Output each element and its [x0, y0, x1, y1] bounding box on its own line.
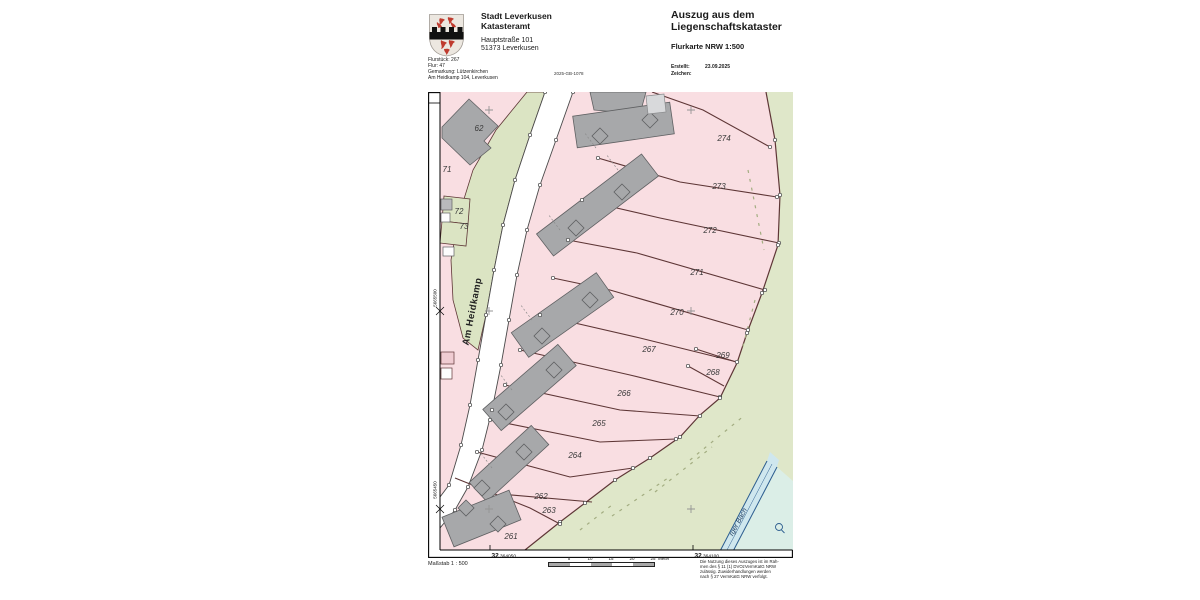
- boundary-point: [518, 348, 521, 351]
- svg-text:32: 32: [492, 553, 500, 559]
- legal-text: Die Nutzung dieses Auszuges ist im Rah- …: [700, 559, 792, 579]
- boundary-point: [480, 448, 483, 451]
- scale-tick-label: 20: [629, 556, 634, 561]
- info-address: Am Heidkamp 104, Leverkusen: [428, 75, 498, 81]
- boundary-point: [453, 508, 456, 511]
- boundary-point: [583, 501, 586, 504]
- small-building: [441, 368, 452, 379]
- boundary-point: [476, 358, 479, 361]
- boundary-point: [551, 276, 554, 279]
- boundary-point: [543, 92, 546, 94]
- scale-tick-label: 25: [650, 556, 655, 561]
- boundary-point: [554, 138, 557, 141]
- scale-unit-label: Meter: [658, 556, 670, 561]
- boundary-point: [776, 243, 779, 246]
- parcel-label-71: 71: [443, 165, 452, 174]
- office-address-line1: Hauptstraße 101: [481, 37, 533, 45]
- parcel-label-73: 73: [460, 222, 469, 231]
- scale-text: Maßstab 1 : 500: [428, 561, 468, 567]
- small-building: [441, 213, 450, 222]
- parcel-label-272: 272: [702, 226, 717, 235]
- map-content: Am Heidkamp rger Bach 627172732742732722…: [440, 92, 793, 550]
- boundary-point: [447, 483, 450, 486]
- boundary-point: [515, 273, 518, 276]
- boundary-point: [718, 396, 721, 399]
- boundary-point: [468, 403, 471, 406]
- boundary-point: [528, 133, 531, 136]
- boundary-point: [773, 138, 776, 141]
- parcel-label-274: 274: [716, 134, 731, 143]
- boundary-point: [492, 268, 495, 271]
- parcel-label-62: 62: [475, 124, 484, 133]
- cadastral-map: Am Heidkamp rger Bach 627172732742732722…: [428, 92, 793, 558]
- boundary-point: [613, 478, 616, 481]
- boundary-point: [768, 145, 771, 148]
- boundary-point: [466, 485, 469, 488]
- boundary-point: [735, 360, 738, 363]
- boundary-point: [488, 418, 491, 421]
- boundary-point: [580, 198, 583, 201]
- boundary-point: [571, 92, 574, 94]
- scale-bar: 5 10 15 20 25 Meter: [548, 556, 678, 568]
- boundary-point: [674, 437, 677, 440]
- boundary-point: [686, 364, 689, 367]
- document-title-line1: Auszug aus dem: [671, 9, 754, 21]
- parcel-label-268: 268: [705, 368, 720, 377]
- boundary-point: [503, 383, 506, 386]
- small-building: [441, 352, 454, 364]
- boundary-point: [490, 408, 493, 411]
- parcel-label-271: 271: [689, 268, 703, 277]
- boundary-point: [499, 363, 502, 366]
- boundary-point: [475, 450, 478, 453]
- leverkusen-coat-of-arms: [428, 13, 465, 57]
- parcel-label-270: 270: [669, 308, 684, 317]
- svg-text:5665450: 5665450: [433, 481, 438, 499]
- boundary-point: [538, 313, 541, 316]
- boundary-point: [513, 178, 516, 181]
- parcel-label-264: 264: [567, 451, 582, 460]
- scale-tick-label: 5: [568, 556, 571, 561]
- scale-bar-graphic: [548, 562, 655, 567]
- boundary-point: [678, 435, 681, 438]
- building-light: [646, 94, 666, 114]
- parcel-label-267: 267: [641, 345, 656, 354]
- created-value: 23.09.2025: [705, 64, 730, 70]
- office-address-line2: 51373 Leverkusen: [481, 45, 539, 53]
- boundary-point: [778, 193, 781, 196]
- small-building: [443, 247, 454, 256]
- boundary-point: [698, 414, 701, 417]
- svg-text:364050: 364050: [500, 554, 516, 559]
- boundary-point: [525, 228, 528, 231]
- parcel-label-262: 262: [533, 492, 548, 501]
- boundary-point: [484, 313, 487, 316]
- boundary-point: [596, 156, 599, 159]
- parcel-label-265: 265: [591, 419, 606, 428]
- small-building: [441, 199, 452, 210]
- document-number: 2025-GB-1078: [554, 71, 584, 76]
- parcel-label-72: 72: [455, 207, 464, 216]
- boundary-point: [566, 238, 569, 241]
- svg-text:364100: 364100: [703, 554, 719, 559]
- document-title-line2: Liegenschaftskataster: [671, 21, 782, 33]
- parcel-label-261: 261: [503, 532, 517, 541]
- cadastral-extract-page: Stadt Leverkusen Katasteramt Hauptstraße…: [0, 0, 1200, 600]
- svg-text:32: 32: [695, 553, 703, 559]
- sign-label: Zeichen:: [671, 71, 692, 77]
- boundary-point: [459, 443, 462, 446]
- boundary-point: [745, 331, 748, 334]
- boundary-point: [538, 183, 541, 186]
- boundary-point: [694, 347, 697, 350]
- boundary-point: [763, 288, 766, 291]
- parcel-label-269: 269: [715, 351, 730, 360]
- boundary-point: [501, 223, 504, 226]
- office-name-line2: Katasteramt: [481, 22, 530, 32]
- document-subtitle: Flurkarte NRW 1:500: [671, 42, 744, 51]
- parcel-label-273: 273: [711, 182, 726, 191]
- boundary-point: [558, 522, 561, 525]
- created-label: Erstellt:: [671, 64, 690, 70]
- parcel-label-263: 263: [541, 506, 556, 515]
- boundary-point: [648, 456, 651, 459]
- parcel-label-266: 266: [616, 389, 631, 398]
- svg-text:5665500: 5665500: [433, 289, 438, 307]
- scale-tick-label: 15: [608, 556, 613, 561]
- boundary-point: [631, 466, 634, 469]
- boundary-point: [760, 291, 763, 294]
- boundary-point: [507, 318, 510, 321]
- scale-tick-label: 10: [587, 556, 592, 561]
